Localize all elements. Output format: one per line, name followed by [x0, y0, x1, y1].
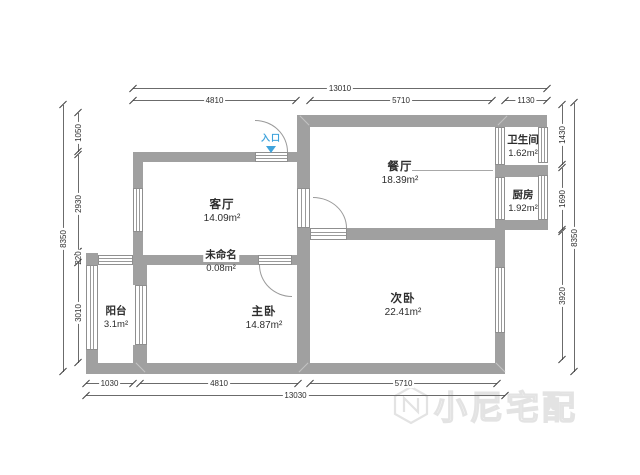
wall: [505, 220, 548, 230]
dim-label: 13010: [327, 85, 353, 93]
dim-left-seg-2: 2930: [78, 155, 79, 252]
room-label-dining: 餐厅 18.39m²: [382, 158, 419, 186]
room-area: 0.08m²: [203, 263, 239, 274]
window: [133, 188, 143, 232]
dim-left-outer: 8350: [63, 105, 64, 372]
room-label-kitchen: 厨房 1.92m²: [508, 187, 538, 214]
dim-label: 1430: [559, 124, 567, 146]
room-area: 1.92m²: [508, 203, 538, 214]
room-name: 客厅: [204, 196, 241, 212]
dim-right-outer: 8350: [574, 103, 575, 372]
dim-label: 1050: [75, 122, 83, 144]
room-area: 1.62m²: [507, 148, 539, 159]
room-name: 次卧: [385, 290, 422, 306]
dim-bottom-seg-1: 1030: [86, 383, 133, 384]
wall: [297, 115, 310, 162]
dim-left-seg-1: 1050: [78, 113, 79, 152]
window: [135, 285, 147, 345]
room-label-bathroom: 卫生间 1.62m²: [507, 132, 539, 159]
watermark-text: 小尼宅配: [434, 381, 578, 429]
dim-label: 5710: [390, 97, 412, 105]
dim-right-seg-3: 3920: [562, 232, 563, 360]
dim-label: 1030: [99, 380, 121, 388]
dim-label: 3010: [75, 302, 83, 324]
wall: [297, 162, 310, 188]
room-area: 14.09m²: [204, 213, 241, 224]
window: [297, 188, 310, 228]
wall: [133, 152, 255, 162]
dim-bottom-seg-2: 4810: [140, 383, 298, 384]
room-name: 阳台: [104, 303, 128, 318]
dim-label: 8350: [571, 227, 579, 249]
master-bedroom-door-leaf: [258, 255, 292, 265]
floorplan-canvas: 客厅 14.09m² 餐厅 18.39m² 卫生间 1.62m² 厨房 1.92…: [0, 0, 640, 475]
watermark-logo-icon: [391, 385, 431, 425]
window: [538, 127, 548, 163]
wall: [297, 265, 310, 363]
dim-label: 8350: [60, 228, 68, 250]
window: [495, 267, 505, 333]
entrance-door-leaf: [255, 152, 288, 162]
dim-bottom-total: 13030: [86, 395, 505, 396]
dim-label: 3920: [559, 285, 567, 307]
wall: [133, 255, 258, 265]
room-name: 厨房: [508, 187, 538, 202]
wall: [133, 345, 147, 363]
room-label-balcony: 阳台 3.1m²: [104, 303, 128, 330]
room-label-second-bedroom: 次卧 22.41m²: [385, 290, 422, 318]
window: [495, 127, 505, 165]
room-name: 卫生间: [507, 132, 539, 147]
wall: [133, 265, 147, 285]
dim-label: 1130: [515, 97, 536, 105]
entrance-arrow-icon: [266, 146, 276, 153]
wall: [86, 363, 505, 374]
room-name: 餐厅: [382, 158, 419, 174]
window: [495, 177, 505, 220]
entrance-marker: 入口: [261, 131, 281, 153]
dim-label: 2930: [75, 193, 83, 215]
second-bedroom-door-leaf: [310, 228, 347, 240]
room-area: 14.87m²: [246, 320, 283, 331]
wall: [86, 253, 98, 265]
room-area: 22.41m²: [385, 307, 422, 318]
room-name: 未命名: [203, 247, 239, 262]
dim-left-seg-4: 3010: [78, 263, 79, 363]
window: [98, 255, 133, 265]
wall: [86, 350, 98, 363]
dim-bottom-seg-3: 5710: [310, 383, 497, 384]
dim-label: 4810: [204, 97, 226, 105]
room-label-master-bedroom: 主卧 14.87m²: [246, 303, 283, 331]
wall: [310, 115, 547, 127]
master-bedroom-door-swing: [259, 265, 292, 297]
dining-leader-line: [412, 170, 493, 171]
dim-label: 4810: [208, 380, 230, 388]
room-area: 3.1m²: [104, 319, 128, 330]
dim-label: 5710: [393, 380, 415, 388]
room-name: 主卧: [246, 303, 283, 319]
wall: [347, 228, 495, 240]
room-label-living: 客厅 14.09m²: [204, 196, 241, 224]
dim-right-seg-1: 1430: [562, 105, 563, 165]
wall: [495, 220, 505, 267]
entrance-label: 入口: [261, 131, 281, 144]
window: [86, 265, 98, 350]
wall: [133, 232, 143, 255]
wall: [133, 152, 143, 188]
second-bedroom-door-swing: [313, 197, 347, 228]
wall: [292, 255, 310, 265]
window: [538, 175, 548, 220]
room-area: 18.39m²: [382, 175, 419, 186]
watermark: 小尼宅配: [391, 381, 578, 429]
dim-label: 1690: [559, 188, 567, 210]
dim-top-total: 13010: [133, 88, 547, 89]
dim-top-seg-2: 5710: [310, 100, 492, 101]
dim-top-seg-1: 4810: [133, 100, 296, 101]
dim-top-seg-3: 1130: [505, 100, 547, 101]
dim-label: 13030: [282, 392, 308, 400]
dim-right-seg-2: 1690: [562, 168, 563, 230]
wall: [495, 333, 505, 363]
room-label-unnamed: 未命名 0.08m²: [203, 247, 239, 274]
